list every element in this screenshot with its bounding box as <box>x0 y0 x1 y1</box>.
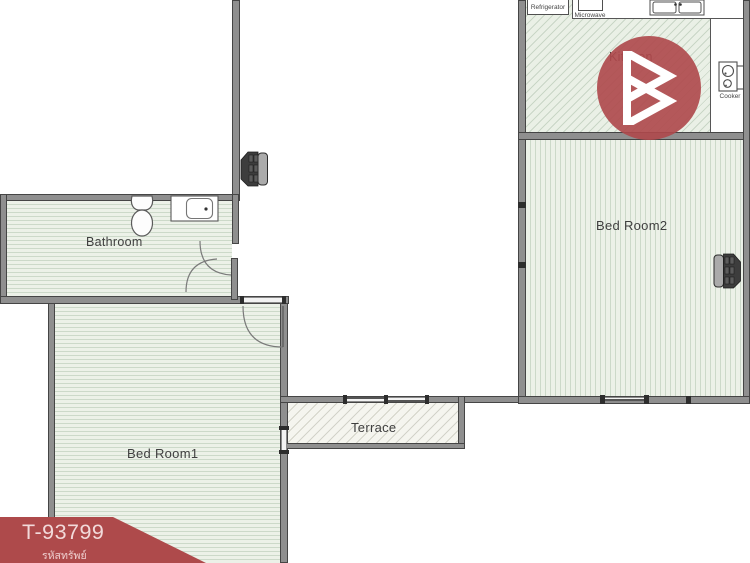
brand-logo-icon <box>621 51 677 125</box>
wall <box>232 194 239 244</box>
wall <box>0 194 7 304</box>
refrigerator-box: Refrigerator <box>527 0 569 15</box>
window-jamb-tick <box>686 396 691 404</box>
wall <box>283 443 465 449</box>
bedroom1-terrace-door-opening <box>281 429 287 450</box>
bedroom1-door-opening <box>243 297 283 303</box>
wall <box>743 0 750 404</box>
bathroom-label: Bathroom <box>86 235 143 249</box>
ac-unit-icon <box>241 152 268 186</box>
wall <box>458 396 465 449</box>
door-jamb-tick <box>240 296 244 304</box>
bedroom2-label: Bed Room2 <box>596 218 667 233</box>
brand-logo-badge <box>597 36 701 140</box>
door-jamb-tick <box>384 395 388 404</box>
wall <box>0 194 240 201</box>
door-jamb-tick <box>279 450 289 454</box>
door-jamb-tick <box>279 426 289 430</box>
door-jamb-tick <box>343 395 347 404</box>
window-jamb-tick <box>600 395 605 404</box>
refrigerator-label: Refrigerator <box>531 4 565 11</box>
floor-plan: Refrigerator Microwave Cooker <box>0 0 750 563</box>
listing-code-caption: รหัสทรัพย์ <box>42 547 87 563</box>
window-pane <box>604 399 648 401</box>
sliding-door-panel <box>386 400 426 402</box>
terrace-label: Terrace <box>351 420 396 435</box>
wall <box>231 258 238 300</box>
listing-code: T-93799 <box>22 520 104 545</box>
wall-stud-tick <box>518 202 526 208</box>
microwave-box <box>578 0 603 11</box>
window-jamb-tick <box>644 395 649 404</box>
door-jamb-tick <box>282 296 286 304</box>
bedroom2-floor <box>525 139 744 397</box>
cooker-label: Cooker <box>714 93 746 100</box>
wall <box>232 0 240 200</box>
microwave-label: Microwave <box>566 12 614 19</box>
kitchen-counter-right <box>710 19 744 133</box>
door-jamb-tick <box>425 395 429 404</box>
wall-stud-tick <box>518 262 526 268</box>
sliding-door-panel <box>346 397 387 399</box>
bedroom1-label: Bed Room1 <box>127 446 198 461</box>
